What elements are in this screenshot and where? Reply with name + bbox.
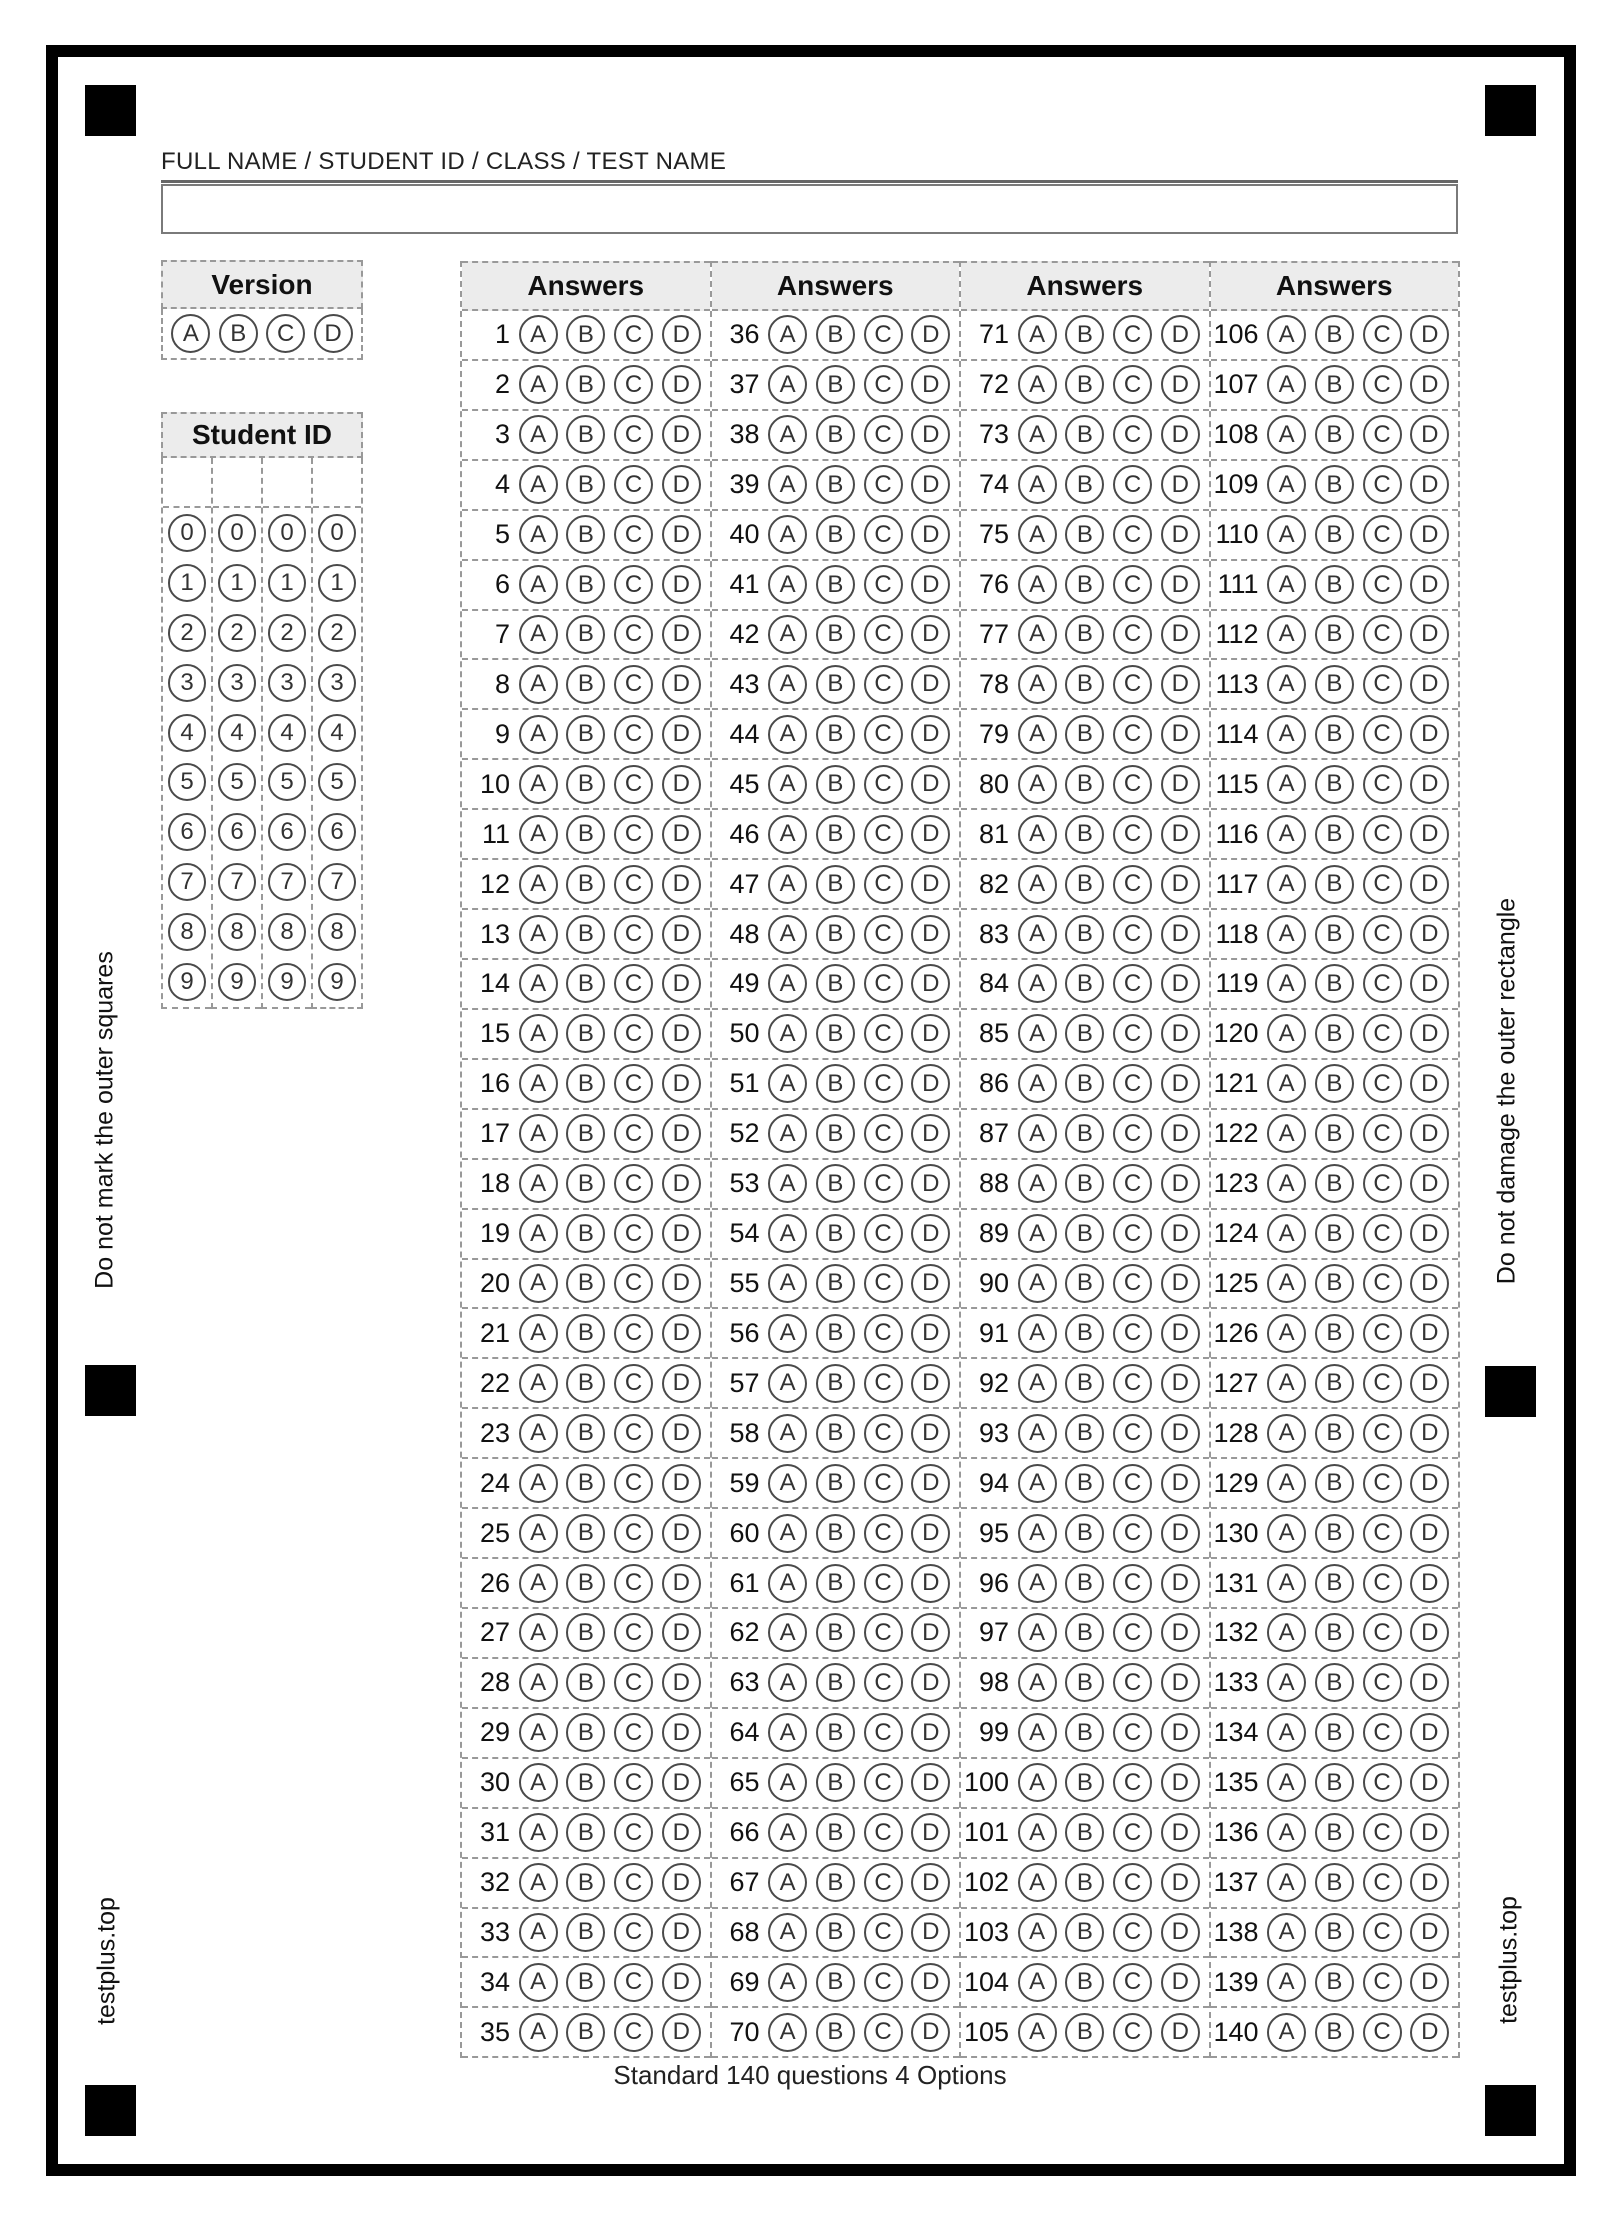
answer-bubble-q47-B[interactable]: B [816, 865, 855, 904]
answer-bubble-q117-A[interactable]: A [1267, 865, 1306, 904]
answer-bubble-q95-B[interactable]: B [1065, 1514, 1104, 1553]
answer-bubble-q121-C[interactable]: C [1363, 1064, 1402, 1103]
studentid-bubble-col3-2[interactable]: 2 [268, 614, 306, 652]
studentid-bubble-col2-8[interactable]: 8 [218, 913, 256, 951]
answer-bubble-q95-C[interactable]: C [1113, 1514, 1152, 1553]
answer-bubble-q30-D[interactable]: D [662, 1763, 701, 1802]
studentid-bubble-col2-1[interactable]: 1 [218, 564, 256, 602]
answer-bubble-q126-A[interactable]: A [1267, 1314, 1306, 1353]
answer-bubble-q123-B[interactable]: B [1315, 1164, 1354, 1203]
answer-bubble-q4-D[interactable]: D [662, 465, 701, 504]
answer-bubble-q91-A[interactable]: A [1018, 1314, 1057, 1353]
answer-bubble-q104-C[interactable]: C [1113, 1963, 1152, 2002]
studentid-digit-box-2[interactable] [213, 458, 261, 508]
answer-bubble-q99-B[interactable]: B [1065, 1713, 1104, 1752]
answer-bubble-q18-B[interactable]: B [566, 1164, 605, 1203]
answer-bubble-q62-A[interactable]: A [768, 1613, 807, 1652]
answer-bubble-q89-C[interactable]: C [1113, 1214, 1152, 1253]
answer-bubble-q128-B[interactable]: B [1315, 1414, 1354, 1453]
answer-bubble-q65-B[interactable]: B [816, 1763, 855, 1802]
answer-bubble-q127-B[interactable]: B [1315, 1364, 1354, 1403]
answer-bubble-q44-B[interactable]: B [816, 715, 855, 754]
answer-bubble-q45-A[interactable]: A [768, 765, 807, 804]
answer-bubble-q133-A[interactable]: A [1267, 1663, 1306, 1702]
answer-bubble-q54-B[interactable]: B [816, 1214, 855, 1253]
answer-bubble-q90-B[interactable]: B [1065, 1264, 1104, 1303]
answer-bubble-q105-B[interactable]: B [1065, 2013, 1104, 2052]
answer-bubble-q4-C[interactable]: C [614, 465, 653, 504]
answer-bubble-q100-D[interactable]: D [1161, 1763, 1200, 1802]
answer-bubble-q93-D[interactable]: D [1161, 1414, 1200, 1453]
answer-bubble-q25-C[interactable]: C [614, 1514, 653, 1553]
answer-bubble-q76-B[interactable]: B [1065, 565, 1104, 604]
answer-bubble-q2-B[interactable]: B [566, 365, 605, 404]
answer-bubble-q2-D[interactable]: D [662, 365, 701, 404]
answer-bubble-q24-C[interactable]: C [614, 1464, 653, 1503]
answer-bubble-q87-D[interactable]: D [1161, 1114, 1200, 1153]
answer-bubble-q122-C[interactable]: C [1363, 1114, 1402, 1153]
answer-bubble-q102-D[interactable]: D [1161, 1863, 1200, 1902]
answer-bubble-q16-A[interactable]: A [519, 1064, 558, 1103]
answer-bubble-q31-A[interactable]: A [519, 1813, 558, 1852]
answer-bubble-q105-D[interactable]: D [1161, 2013, 1200, 2052]
answer-bubble-q40-C[interactable]: C [864, 515, 903, 554]
answer-bubble-q85-D[interactable]: D [1161, 1014, 1200, 1053]
answer-bubble-q98-C[interactable]: C [1113, 1663, 1152, 1702]
answer-bubble-q38-B[interactable]: B [816, 415, 855, 454]
answer-bubble-q94-A[interactable]: A [1018, 1464, 1057, 1503]
answer-bubble-q34-B[interactable]: B [566, 1963, 605, 2002]
answer-bubble-q39-C[interactable]: C [864, 465, 903, 504]
answer-bubble-q66-A[interactable]: A [768, 1813, 807, 1852]
answer-bubble-q100-C[interactable]: C [1113, 1763, 1152, 1802]
studentid-bubble-col3-6[interactable]: 6 [268, 813, 306, 851]
answer-bubble-q67-A[interactable]: A [768, 1863, 807, 1902]
answer-bubble-q79-D[interactable]: D [1161, 715, 1200, 754]
answer-bubble-q107-C[interactable]: C [1363, 365, 1402, 404]
answer-bubble-q14-A[interactable]: A [519, 964, 558, 1003]
answer-bubble-q16-B[interactable]: B [566, 1064, 605, 1103]
answer-bubble-q88-D[interactable]: D [1161, 1164, 1200, 1203]
answer-bubble-q30-A[interactable]: A [519, 1763, 558, 1802]
answer-bubble-q137-A[interactable]: A [1267, 1863, 1306, 1902]
answer-bubble-q37-A[interactable]: A [768, 365, 807, 404]
answer-bubble-q15-B[interactable]: B [566, 1014, 605, 1053]
answer-bubble-q36-D[interactable]: D [911, 315, 950, 354]
answer-bubble-q112-B[interactable]: B [1315, 615, 1354, 654]
studentid-bubble-col3-7[interactable]: 7 [268, 863, 306, 901]
answer-bubble-q113-B[interactable]: B [1315, 665, 1354, 704]
answer-bubble-q111-A[interactable]: A [1267, 565, 1306, 604]
answer-bubble-q100-A[interactable]: A [1018, 1763, 1057, 1802]
answer-bubble-q11-C[interactable]: C [614, 815, 653, 854]
answer-bubble-q7-C[interactable]: C [614, 615, 653, 654]
answer-bubble-q61-B[interactable]: B [816, 1564, 855, 1603]
answer-bubble-q137-D[interactable]: D [1410, 1863, 1449, 1902]
answer-bubble-q95-A[interactable]: A [1018, 1514, 1057, 1553]
answer-bubble-q4-B[interactable]: B [566, 465, 605, 504]
answer-bubble-q52-B[interactable]: B [816, 1114, 855, 1153]
answer-bubble-q69-D[interactable]: D [911, 1963, 950, 2002]
answer-bubble-q45-B[interactable]: B [816, 765, 855, 804]
answer-bubble-q140-C[interactable]: C [1363, 2013, 1402, 2052]
answer-bubble-q84-A[interactable]: A [1018, 964, 1057, 1003]
answer-bubble-q116-D[interactable]: D [1410, 815, 1449, 854]
answer-bubble-q21-A[interactable]: A [519, 1314, 558, 1353]
answer-bubble-q31-C[interactable]: C [614, 1813, 653, 1852]
answer-bubble-q123-A[interactable]: A [1267, 1164, 1306, 1203]
answer-bubble-q40-A[interactable]: A [768, 515, 807, 554]
answer-bubble-q88-C[interactable]: C [1113, 1164, 1152, 1203]
answer-bubble-q135-B[interactable]: B [1315, 1763, 1354, 1802]
answer-bubble-q62-D[interactable]: D [911, 1613, 950, 1652]
answer-bubble-q35-B[interactable]: B [566, 2013, 605, 2052]
answer-bubble-q23-C[interactable]: C [614, 1414, 653, 1453]
answer-bubble-q89-B[interactable]: B [1065, 1214, 1104, 1253]
answer-bubble-q82-A[interactable]: A [1018, 865, 1057, 904]
studentid-digit-box-4[interactable] [313, 458, 361, 508]
answer-bubble-q1-C[interactable]: C [614, 315, 653, 354]
answer-bubble-q28-D[interactable]: D [662, 1663, 701, 1702]
answer-bubble-q71-A[interactable]: A [1018, 315, 1057, 354]
answer-bubble-q48-C[interactable]: C [864, 915, 903, 954]
answer-bubble-q66-C[interactable]: C [864, 1813, 903, 1852]
answer-bubble-q57-C[interactable]: C [864, 1364, 903, 1403]
answer-bubble-q96-D[interactable]: D [1161, 1564, 1200, 1603]
answer-bubble-q11-B[interactable]: B [566, 815, 605, 854]
answer-bubble-q6-B[interactable]: B [566, 565, 605, 604]
answer-bubble-q64-C[interactable]: C [864, 1713, 903, 1752]
answer-bubble-q53-B[interactable]: B [816, 1164, 855, 1203]
answer-bubble-q64-B[interactable]: B [816, 1713, 855, 1752]
answer-bubble-q73-D[interactable]: D [1161, 415, 1200, 454]
answer-bubble-q23-A[interactable]: A [519, 1414, 558, 1453]
answer-bubble-q72-D[interactable]: D [1161, 365, 1200, 404]
answer-bubble-q105-C[interactable]: C [1113, 2013, 1152, 2052]
answer-bubble-q14-B[interactable]: B [566, 964, 605, 1003]
answer-bubble-q133-B[interactable]: B [1315, 1663, 1354, 1702]
answer-bubble-q20-B[interactable]: B [566, 1264, 605, 1303]
answer-bubble-q125-C[interactable]: C [1363, 1264, 1402, 1303]
answer-bubble-q59-C[interactable]: C [864, 1464, 903, 1503]
studentid-digit-box-1[interactable] [163, 458, 211, 508]
answer-bubble-q2-C[interactable]: C [614, 365, 653, 404]
answer-bubble-q41-D[interactable]: D [911, 565, 950, 604]
answer-bubble-q139-D[interactable]: D [1410, 1963, 1449, 2002]
answer-bubble-q114-A[interactable]: A [1267, 715, 1306, 754]
answer-bubble-q31-D[interactable]: D [662, 1813, 701, 1852]
studentid-bubble-col3-1[interactable]: 1 [268, 564, 306, 602]
version-bubble-D[interactable]: D [314, 314, 353, 353]
answer-bubble-q75-B[interactable]: B [1065, 515, 1104, 554]
answer-bubble-q8-B[interactable]: B [566, 665, 605, 704]
studentid-bubble-col4-6[interactable]: 6 [318, 813, 356, 851]
studentid-bubble-col2-5[interactable]: 5 [218, 763, 256, 801]
answer-bubble-q34-C[interactable]: C [614, 1963, 653, 2002]
answer-bubble-q127-A[interactable]: A [1267, 1364, 1306, 1403]
answer-bubble-q91-C[interactable]: C [1113, 1314, 1152, 1353]
answer-bubble-q49-A[interactable]: A [768, 964, 807, 1003]
answer-bubble-q92-B[interactable]: B [1065, 1364, 1104, 1403]
answer-bubble-q117-C[interactable]: C [1363, 865, 1402, 904]
answer-bubble-q100-B[interactable]: B [1065, 1763, 1104, 1802]
answer-bubble-q19-B[interactable]: B [566, 1214, 605, 1253]
answer-bubble-q79-A[interactable]: A [1018, 715, 1057, 754]
answer-bubble-q98-D[interactable]: D [1161, 1663, 1200, 1702]
answer-bubble-q73-B[interactable]: B [1065, 415, 1104, 454]
studentid-bubble-col2-0[interactable]: 0 [218, 514, 256, 552]
answer-bubble-q119-D[interactable]: D [1410, 964, 1449, 1003]
answer-bubble-q119-C[interactable]: C [1363, 964, 1402, 1003]
studentid-bubble-col3-9[interactable]: 9 [268, 963, 306, 1001]
studentid-bubble-col3-3[interactable]: 3 [268, 664, 306, 702]
answer-bubble-q126-D[interactable]: D [1410, 1314, 1449, 1353]
answer-bubble-q60-D[interactable]: D [911, 1514, 950, 1553]
answer-bubble-q16-C[interactable]: C [614, 1064, 653, 1103]
answer-bubble-q17-C[interactable]: C [614, 1114, 653, 1153]
answer-bubble-q63-C[interactable]: C [864, 1663, 903, 1702]
studentid-bubble-col1-1[interactable]: 1 [168, 564, 206, 602]
answer-bubble-q119-A[interactable]: A [1267, 964, 1306, 1003]
answer-bubble-q37-C[interactable]: C [864, 365, 903, 404]
answer-bubble-q92-A[interactable]: A [1018, 1364, 1057, 1403]
answer-bubble-q122-D[interactable]: D [1410, 1114, 1449, 1153]
version-bubble-B[interactable]: B [219, 314, 258, 353]
studentid-bubble-col4-2[interactable]: 2 [318, 614, 356, 652]
answer-bubble-q108-A[interactable]: A [1267, 415, 1306, 454]
answer-bubble-q75-D[interactable]: D [1161, 515, 1200, 554]
answer-bubble-q121-D[interactable]: D [1410, 1064, 1449, 1103]
answer-bubble-q27-C[interactable]: C [614, 1613, 653, 1652]
answer-bubble-q110-A[interactable]: A [1267, 515, 1306, 554]
answer-bubble-q108-C[interactable]: C [1363, 415, 1402, 454]
answer-bubble-q20-C[interactable]: C [614, 1264, 653, 1303]
answer-bubble-q78-A[interactable]: A [1018, 665, 1057, 704]
answer-bubble-q110-C[interactable]: C [1363, 515, 1402, 554]
answer-bubble-q76-A[interactable]: A [1018, 565, 1057, 604]
answer-bubble-q14-D[interactable]: D [662, 964, 701, 1003]
answer-bubble-q97-C[interactable]: C [1113, 1613, 1152, 1652]
answer-bubble-q134-B[interactable]: B [1315, 1713, 1354, 1752]
answer-bubble-q68-A[interactable]: A [768, 1913, 807, 1952]
answer-bubble-q122-B[interactable]: B [1315, 1114, 1354, 1153]
answer-bubble-q120-C[interactable]: C [1363, 1014, 1402, 1053]
answer-bubble-q59-A[interactable]: A [768, 1464, 807, 1503]
answer-bubble-q134-A[interactable]: A [1267, 1713, 1306, 1752]
answer-bubble-q101-C[interactable]: C [1113, 1813, 1152, 1852]
answer-bubble-q86-B[interactable]: B [1065, 1064, 1104, 1103]
answer-bubble-q7-A[interactable]: A [519, 615, 558, 654]
studentid-bubble-col3-8[interactable]: 8 [268, 913, 306, 951]
answer-bubble-q113-A[interactable]: A [1267, 665, 1306, 704]
answer-bubble-q96-B[interactable]: B [1065, 1564, 1104, 1603]
answer-bubble-q128-D[interactable]: D [1410, 1414, 1449, 1453]
answer-bubble-q109-D[interactable]: D [1410, 465, 1449, 504]
answer-bubble-q78-C[interactable]: C [1113, 665, 1152, 704]
studentid-bubble-col1-8[interactable]: 8 [168, 913, 206, 951]
studentid-bubble-col2-7[interactable]: 7 [218, 863, 256, 901]
answer-bubble-q17-D[interactable]: D [662, 1114, 701, 1153]
answer-bubble-q125-B[interactable]: B [1315, 1264, 1354, 1303]
answer-bubble-q133-C[interactable]: C [1363, 1663, 1402, 1702]
answer-bubble-q33-B[interactable]: B [566, 1913, 605, 1952]
answer-bubble-q28-B[interactable]: B [566, 1663, 605, 1702]
studentid-bubble-col2-6[interactable]: 6 [218, 813, 256, 851]
answer-bubble-q111-B[interactable]: B [1315, 565, 1354, 604]
answer-bubble-q136-B[interactable]: B [1315, 1813, 1354, 1852]
answer-bubble-q82-D[interactable]: D [1161, 865, 1200, 904]
answer-bubble-q56-D[interactable]: D [911, 1314, 950, 1353]
answer-bubble-q65-C[interactable]: C [864, 1763, 903, 1802]
answer-bubble-q50-B[interactable]: B [816, 1014, 855, 1053]
answer-bubble-q98-B[interactable]: B [1065, 1663, 1104, 1702]
answer-bubble-q49-C[interactable]: C [864, 964, 903, 1003]
studentid-bubble-col1-4[interactable]: 4 [168, 714, 206, 752]
answer-bubble-q101-D[interactable]: D [1161, 1813, 1200, 1852]
answer-bubble-q83-A[interactable]: A [1018, 915, 1057, 954]
answer-bubble-q136-D[interactable]: D [1410, 1813, 1449, 1852]
answer-bubble-q139-A[interactable]: A [1267, 1963, 1306, 2002]
answer-bubble-q25-B[interactable]: B [566, 1514, 605, 1553]
studentid-bubble-col4-5[interactable]: 5 [318, 763, 356, 801]
answer-bubble-q77-D[interactable]: D [1161, 615, 1200, 654]
answer-bubble-q84-B[interactable]: B [1065, 964, 1104, 1003]
answer-bubble-q81-D[interactable]: D [1161, 815, 1200, 854]
answer-bubble-q7-B[interactable]: B [566, 615, 605, 654]
answer-bubble-q138-B[interactable]: B [1315, 1913, 1354, 1952]
answer-bubble-q71-D[interactable]: D [1161, 315, 1200, 354]
answer-bubble-q103-C[interactable]: C [1113, 1913, 1152, 1952]
answer-bubble-q48-A[interactable]: A [768, 915, 807, 954]
answer-bubble-q3-B[interactable]: B [566, 415, 605, 454]
answer-bubble-q16-D[interactable]: D [662, 1064, 701, 1103]
answer-bubble-q43-C[interactable]: C [864, 665, 903, 704]
answer-bubble-q131-A[interactable]: A [1267, 1564, 1306, 1603]
answer-bubble-q85-B[interactable]: B [1065, 1014, 1104, 1053]
answer-bubble-q46-C[interactable]: C [864, 815, 903, 854]
studentid-bubble-col1-3[interactable]: 3 [168, 664, 206, 702]
answer-bubble-q82-B[interactable]: B [1065, 865, 1104, 904]
answer-bubble-q107-D[interactable]: D [1410, 365, 1449, 404]
answer-bubble-q110-B[interactable]: B [1315, 515, 1354, 554]
answer-bubble-q10-B[interactable]: B [566, 765, 605, 804]
answer-bubble-q117-B[interactable]: B [1315, 865, 1354, 904]
answer-bubble-q9-B[interactable]: B [566, 715, 605, 754]
version-bubble-A[interactable]: A [171, 314, 210, 353]
answer-bubble-q40-B[interactable]: B [816, 515, 855, 554]
answer-bubble-q53-A[interactable]: A [768, 1164, 807, 1203]
answer-bubble-q55-A[interactable]: A [768, 1264, 807, 1303]
answer-bubble-q43-A[interactable]: A [768, 665, 807, 704]
answer-bubble-q74-C[interactable]: C [1113, 465, 1152, 504]
answer-bubble-q120-D[interactable]: D [1410, 1014, 1449, 1053]
answer-bubble-q116-B[interactable]: B [1315, 815, 1354, 854]
answer-bubble-q107-B[interactable]: B [1315, 365, 1354, 404]
answer-bubble-q54-C[interactable]: C [864, 1214, 903, 1253]
answer-bubble-q71-B[interactable]: B [1065, 315, 1104, 354]
answer-bubble-q57-A[interactable]: A [768, 1364, 807, 1403]
answer-bubble-q137-C[interactable]: C [1363, 1863, 1402, 1902]
answer-bubble-q131-D[interactable]: D [1410, 1564, 1449, 1603]
answer-bubble-q44-A[interactable]: A [768, 715, 807, 754]
answer-bubble-q33-C[interactable]: C [614, 1913, 653, 1952]
studentid-bubble-col1-6[interactable]: 6 [168, 813, 206, 851]
answer-bubble-q62-B[interactable]: B [816, 1613, 855, 1652]
answer-bubble-q67-D[interactable]: D [911, 1863, 950, 1902]
answer-bubble-q109-C[interactable]: C [1363, 465, 1402, 504]
answer-bubble-q130-D[interactable]: D [1410, 1514, 1449, 1553]
answer-bubble-q27-D[interactable]: D [662, 1613, 701, 1652]
answer-bubble-q80-D[interactable]: D [1161, 765, 1200, 804]
studentid-bubble-col3-0[interactable]: 0 [268, 514, 306, 552]
answer-bubble-q121-B[interactable]: B [1315, 1064, 1354, 1103]
answer-bubble-q130-A[interactable]: A [1267, 1514, 1306, 1553]
answer-bubble-q53-D[interactable]: D [911, 1164, 950, 1203]
answer-bubble-q29-C[interactable]: C [614, 1713, 653, 1752]
answer-bubble-q63-A[interactable]: A [768, 1663, 807, 1702]
answer-bubble-q115-C[interactable]: C [1363, 765, 1402, 804]
answer-bubble-q5-B[interactable]: B [566, 515, 605, 554]
answer-bubble-q84-D[interactable]: D [1161, 964, 1200, 1003]
answer-bubble-q129-D[interactable]: D [1410, 1464, 1449, 1503]
answer-bubble-q82-C[interactable]: C [1113, 865, 1152, 904]
answer-bubble-q108-D[interactable]: D [1410, 415, 1449, 454]
answer-bubble-q57-B[interactable]: B [816, 1364, 855, 1403]
answer-bubble-q67-C[interactable]: C [864, 1863, 903, 1902]
answer-bubble-q126-B[interactable]: B [1315, 1314, 1354, 1353]
answer-bubble-q13-A[interactable]: A [519, 915, 558, 954]
answer-bubble-q23-D[interactable]: D [662, 1414, 701, 1453]
answer-bubble-q33-A[interactable]: A [519, 1913, 558, 1952]
answer-bubble-q8-D[interactable]: D [662, 665, 701, 704]
answer-bubble-q78-D[interactable]: D [1161, 665, 1200, 704]
answer-bubble-q56-C[interactable]: C [864, 1314, 903, 1353]
answer-bubble-q135-A[interactable]: A [1267, 1763, 1306, 1802]
answer-bubble-q123-C[interactable]: C [1363, 1164, 1402, 1203]
answer-bubble-q80-A[interactable]: A [1018, 765, 1057, 804]
answer-bubble-q7-D[interactable]: D [662, 615, 701, 654]
answer-bubble-q48-B[interactable]: B [816, 915, 855, 954]
answer-bubble-q35-D[interactable]: D [662, 2013, 701, 2052]
answer-bubble-q58-B[interactable]: B [816, 1414, 855, 1453]
answer-bubble-q97-B[interactable]: B [1065, 1613, 1104, 1652]
answer-bubble-q105-A[interactable]: A [1018, 2013, 1057, 2052]
answer-bubble-q89-D[interactable]: D [1161, 1214, 1200, 1253]
answer-bubble-q42-B[interactable]: B [816, 615, 855, 654]
answer-bubble-q32-B[interactable]: B [566, 1863, 605, 1902]
studentid-bubble-col4-3[interactable]: 3 [318, 664, 356, 702]
answer-bubble-q50-D[interactable]: D [911, 1014, 950, 1053]
answer-bubble-q72-C[interactable]: C [1113, 365, 1152, 404]
answer-bubble-q63-D[interactable]: D [911, 1663, 950, 1702]
answer-bubble-q120-A[interactable]: A [1267, 1014, 1306, 1053]
answer-bubble-q129-B[interactable]: B [1315, 1464, 1354, 1503]
answer-bubble-q119-B[interactable]: B [1315, 964, 1354, 1003]
answer-bubble-q63-B[interactable]: B [816, 1663, 855, 1702]
answer-bubble-q11-D[interactable]: D [662, 815, 701, 854]
answer-bubble-q5-C[interactable]: C [614, 515, 653, 554]
answer-bubble-q131-C[interactable]: C [1363, 1564, 1402, 1603]
answer-bubble-q77-B[interactable]: B [1065, 615, 1104, 654]
answer-bubble-q38-C[interactable]: C [864, 415, 903, 454]
answer-bubble-q67-B[interactable]: B [816, 1863, 855, 1902]
answer-bubble-q22-C[interactable]: C [614, 1364, 653, 1403]
studentid-bubble-col1-0[interactable]: 0 [168, 514, 206, 552]
answer-bubble-q113-C[interactable]: C [1363, 665, 1402, 704]
answer-bubble-q102-B[interactable]: B [1065, 1863, 1104, 1902]
answer-bubble-q121-A[interactable]: A [1267, 1064, 1306, 1103]
answer-bubble-q32-D[interactable]: D [662, 1863, 701, 1902]
